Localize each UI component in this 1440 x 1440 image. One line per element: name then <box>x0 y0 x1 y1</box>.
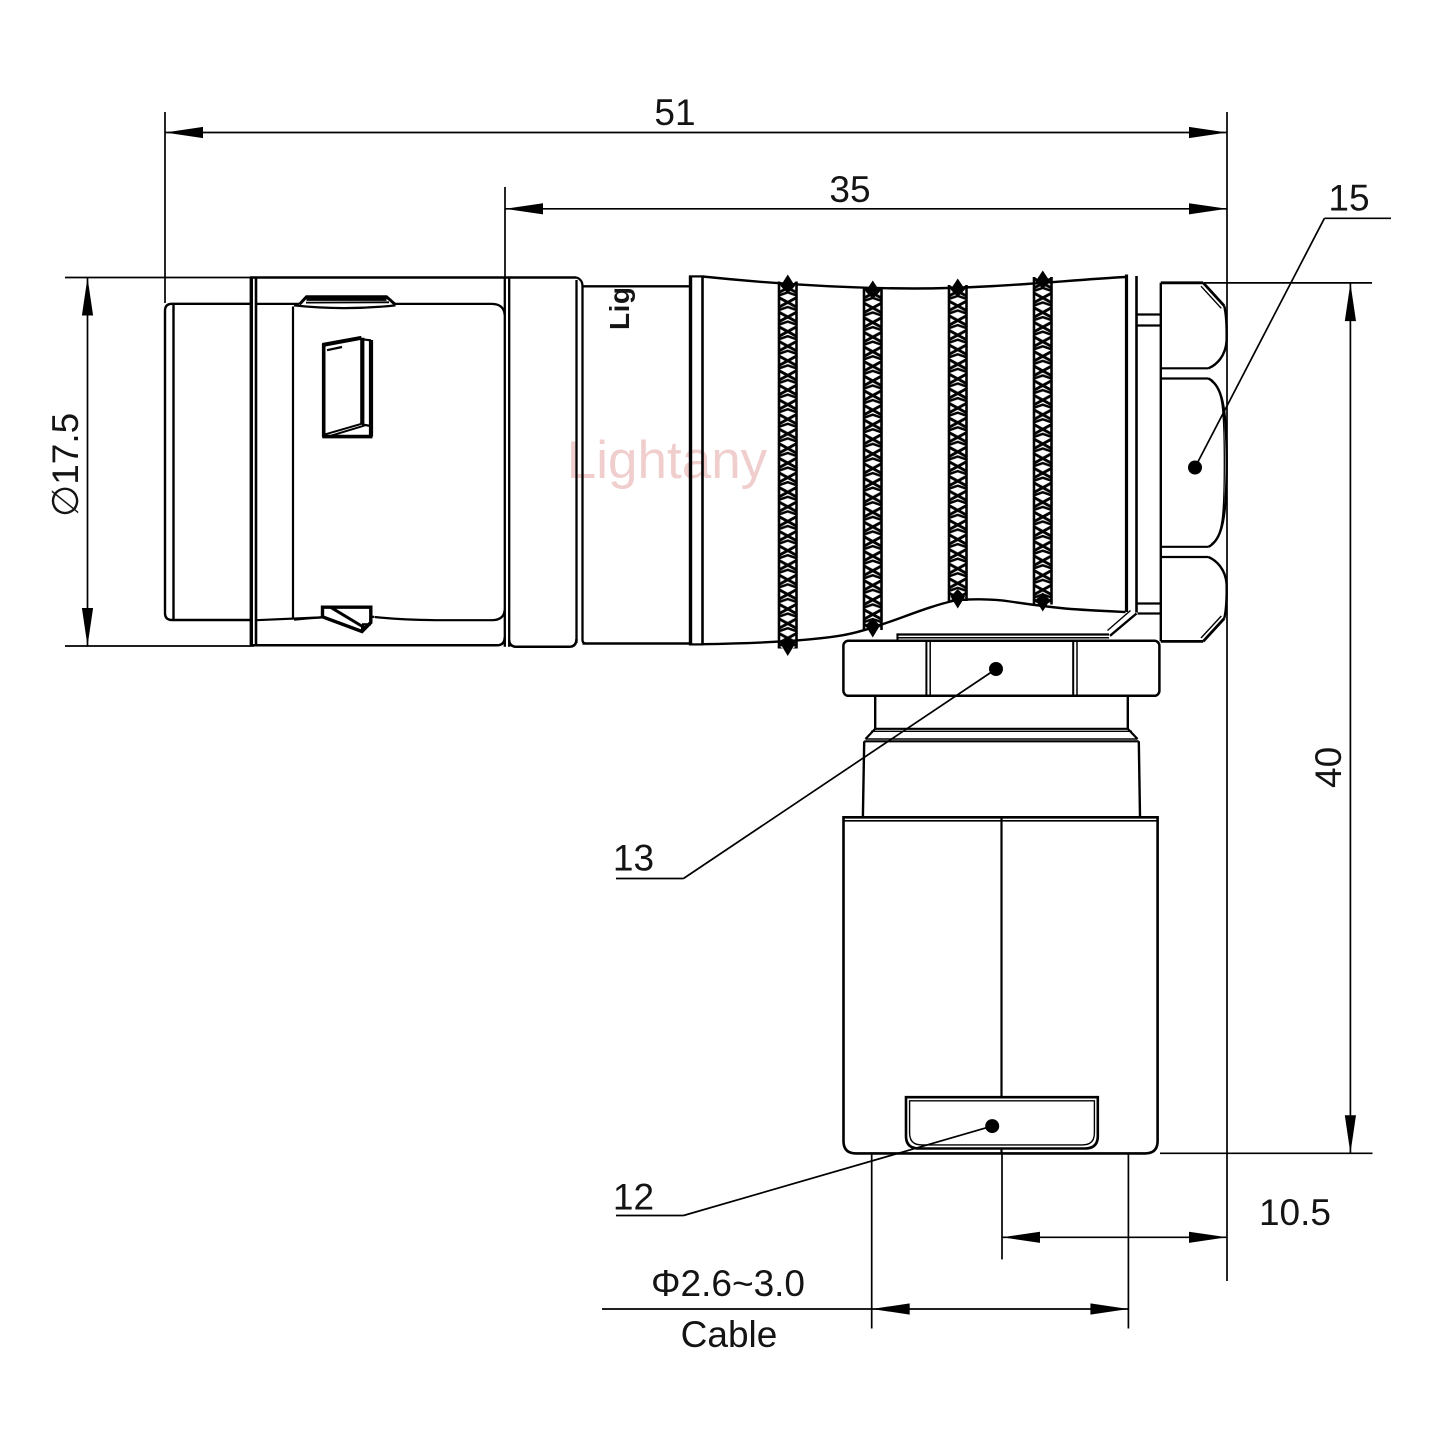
svg-text:40: 40 <box>1308 747 1349 788</box>
svg-text:51: 51 <box>654 92 695 133</box>
svg-text:35: 35 <box>829 169 870 210</box>
svg-text:Lightany: Lightany <box>567 431 768 490</box>
svg-text:Φ2.6~3.0: Φ2.6~3.0 <box>651 1263 805 1304</box>
svg-text:10.5: 10.5 <box>1259 1192 1331 1233</box>
svg-text:13: 13 <box>613 838 654 879</box>
svg-text:∅17.5: ∅17.5 <box>45 413 86 517</box>
svg-text:Lig: Lig <box>604 287 635 331</box>
svg-text:12: 12 <box>613 1177 654 1218</box>
svg-text:Cable: Cable <box>681 1314 778 1355</box>
svg-text:15: 15 <box>1328 178 1369 219</box>
